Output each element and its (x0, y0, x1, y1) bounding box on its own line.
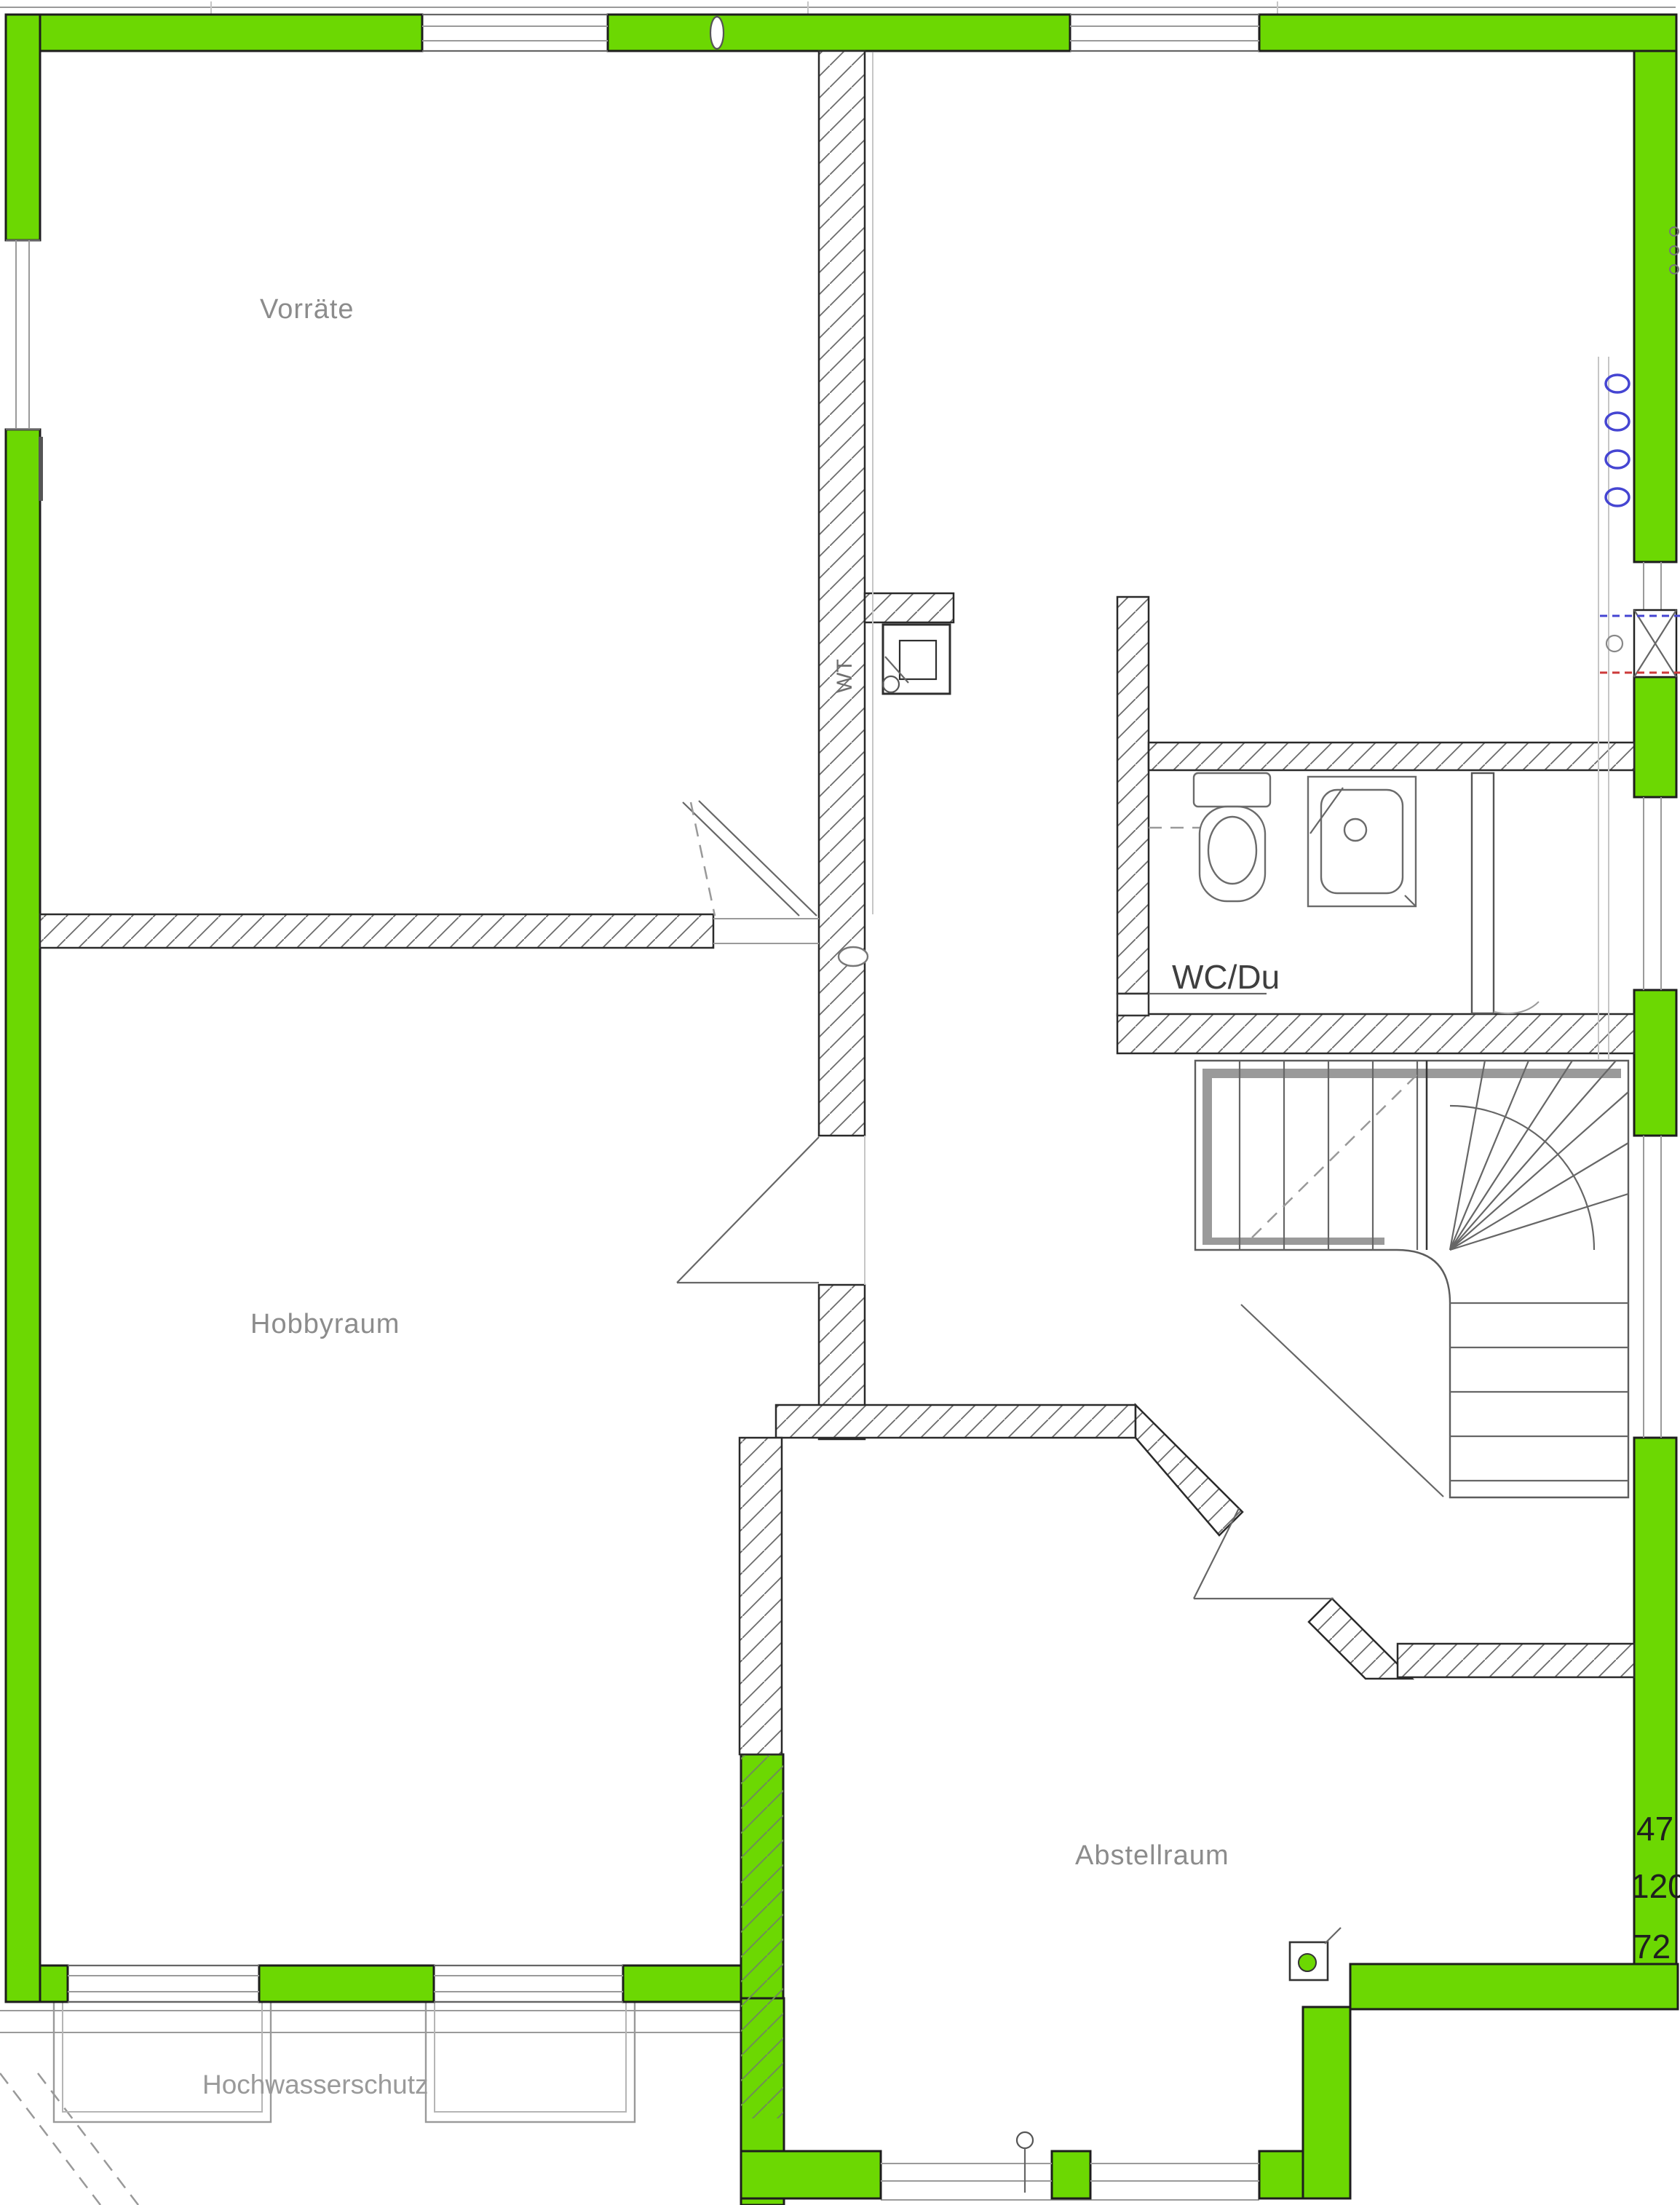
wall-left-upper-segment (6, 15, 40, 240)
wall-top-middle-segment (608, 15, 1070, 51)
wall-hobby-abstell-upper (740, 1438, 782, 1754)
wall-bulge-bottom-pier (1052, 2151, 1090, 2198)
washbasin-block (883, 625, 950, 694)
floor-plan-canvas: Vorräte Hobbyraum WC/Du Abstellraum Hoch… (0, 0, 1680, 2205)
wall-top-right-segment (1259, 15, 1676, 51)
wall-bottom-segment-3 (623, 1966, 751, 2002)
dimension-72: 72 (1633, 1928, 1671, 1966)
wall-divider-horizontal (40, 914, 713, 948)
wall-bottom-segment-2 (259, 1966, 434, 2002)
wall-wc-left-endcap (1117, 994, 1149, 1016)
wall-abstellraum-right-horizontal (1398, 1644, 1634, 1677)
hatch-overlay (741, 1754, 783, 2118)
wall-right-segment-2 (1634, 677, 1676, 797)
room-label-vorraete: Vorräte (260, 294, 354, 325)
wall-bulge-bottom-1 (741, 2151, 881, 2198)
wall-washbasin-stub (865, 593, 954, 622)
wall-joint-marker (710, 17, 724, 49)
wall-bottom-segment-1 (40, 1966, 68, 2002)
wall-top-left-segment (6, 15, 422, 51)
wall-right-segment-1 (1634, 51, 1676, 562)
room-label-hobbyraum: Hobbyraum (250, 1309, 400, 1339)
wall-stair-top (1117, 1014, 1634, 1053)
wall-right-segment-3 (1634, 990, 1676, 1136)
toilet (1194, 773, 1270, 901)
wall-abstellraum-top (776, 1405, 1136, 1438)
shower (1308, 777, 1416, 906)
annotation-wt: WT (833, 659, 857, 693)
dimension-120: 120 (1631, 1867, 1680, 1905)
wall-wc-top (1149, 743, 1634, 770)
room-label-abstellraum: Abstellraum (1075, 1840, 1229, 1871)
wall-bulge-right (1303, 2007, 1350, 2198)
wall-wc-left (1117, 597, 1149, 994)
dimension-47: 47 (1636, 1810, 1673, 1848)
wall-central-vertical (819, 51, 865, 1136)
room-label-wc-du: WC/Du (1172, 958, 1280, 996)
wall-bottom-right (1350, 1964, 1678, 2009)
wall-right-segment-4 (1634, 1438, 1676, 2009)
annotation-hochwasserschutz: Hochwasserschutz (202, 2070, 429, 2099)
wall-left-lower-segment (6, 429, 40, 2002)
